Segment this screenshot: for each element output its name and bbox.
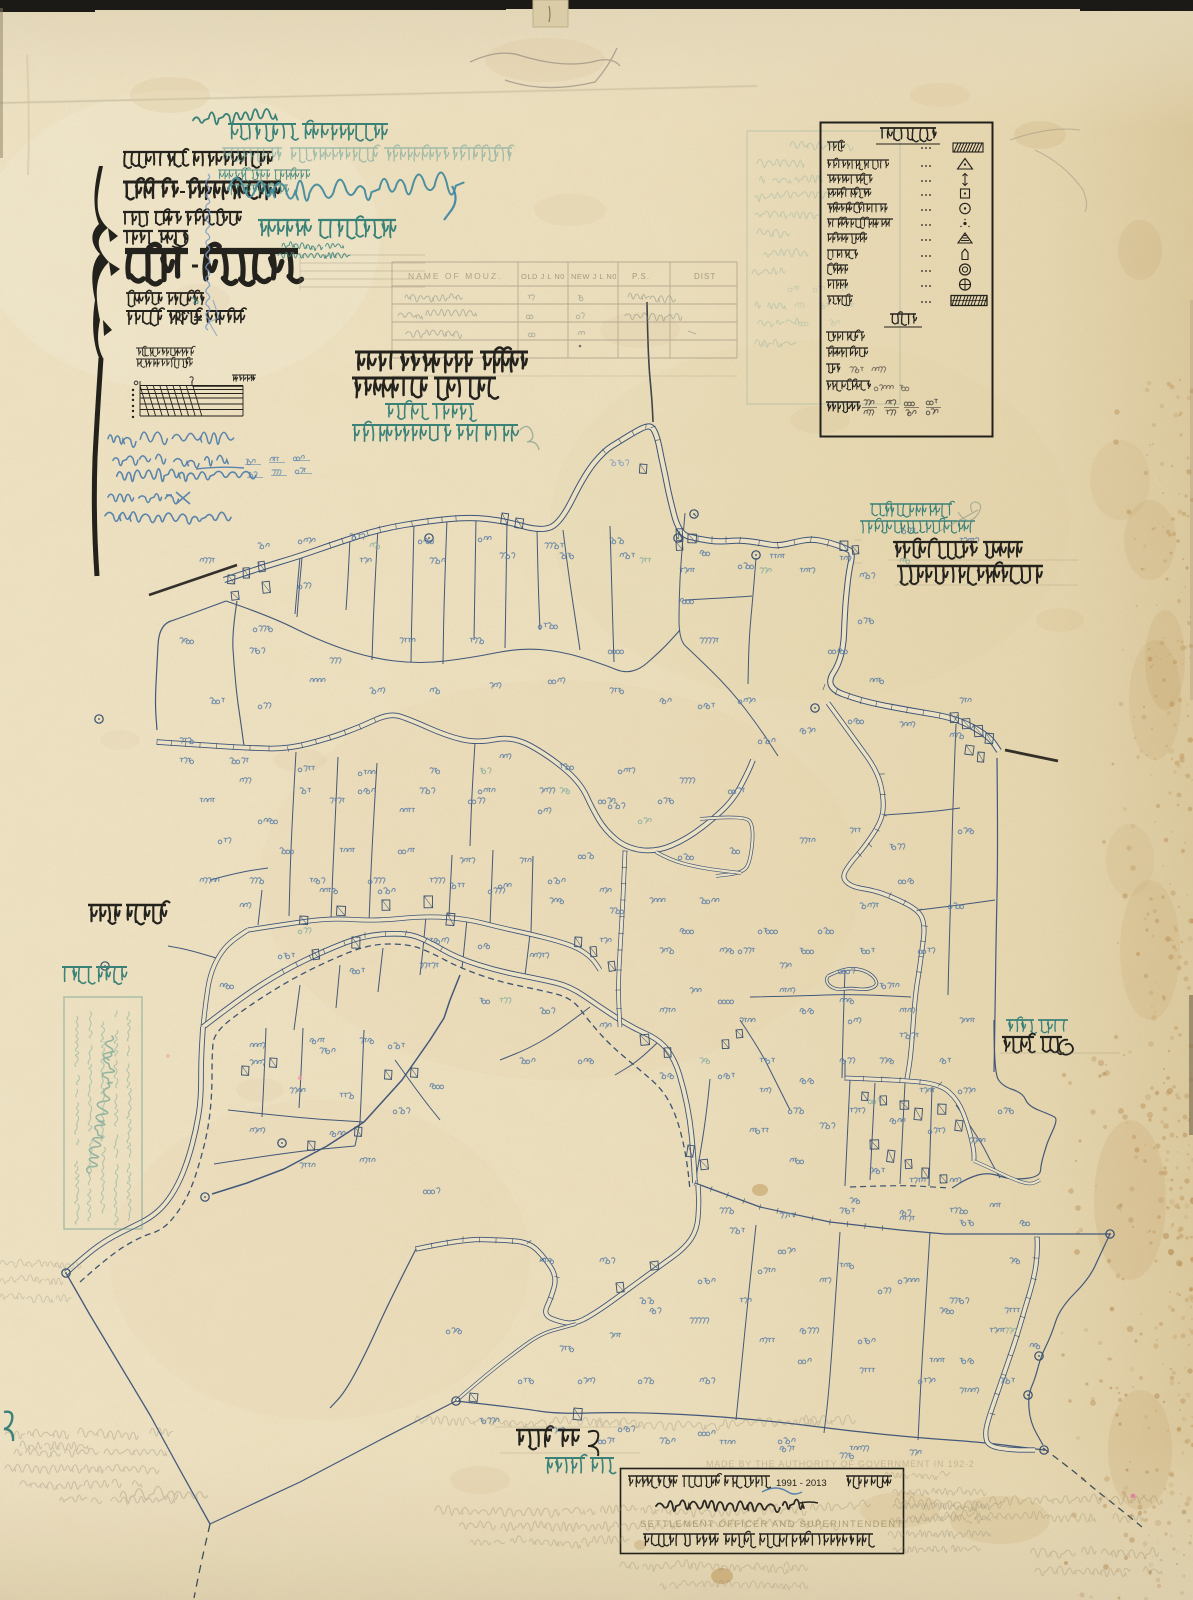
svg-text:NEW J L N0: NEW J L N0 [571, 272, 617, 281]
svg-text:MADE BY THE AUTHORITY OF GOVER: MADE BY THE AUTHORITY OF GOVERNMENT IN 1… [706, 1459, 975, 1469]
svg-text:NAME OF MOUZ.: NAME OF MOUZ. [408, 271, 502, 281]
svg-text:1991 - 2013: 1991 - 2013 [776, 1478, 827, 1489]
svg-text:OLD J L N0: OLD J L N0 [521, 272, 565, 281]
svg-text:DIST: DIST [694, 272, 716, 281]
svg-text:P.S.: P.S. [632, 272, 650, 281]
